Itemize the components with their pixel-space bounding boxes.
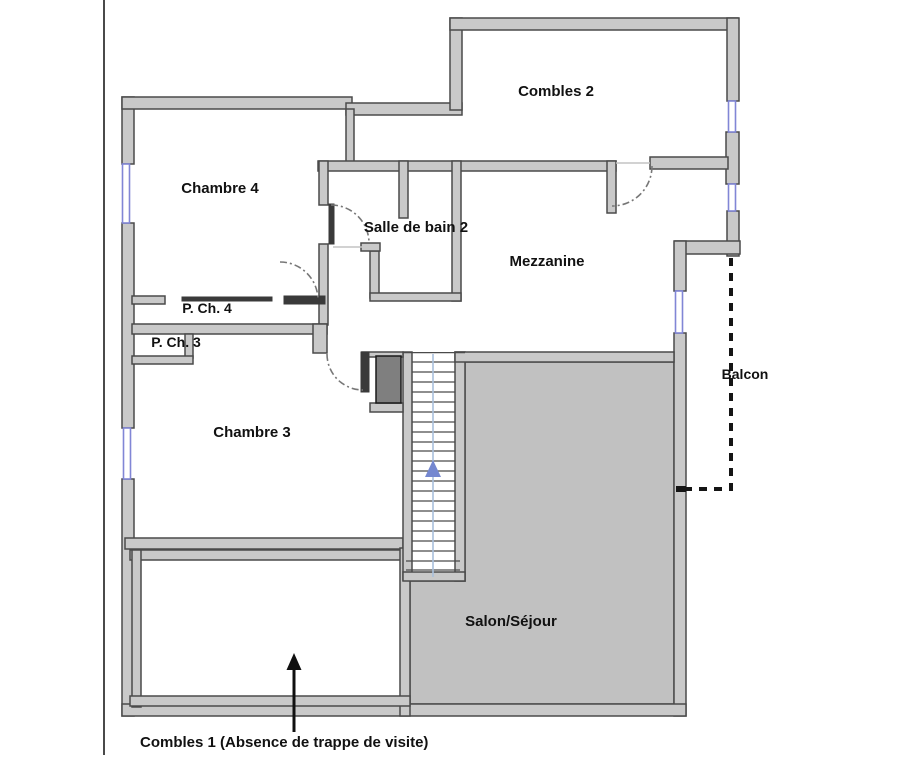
label-salon-sejour: Salon/Séjour bbox=[465, 613, 557, 630]
floorplan-canvas: Combles 2 Chambre 4 Salle de bain 2 Mezz… bbox=[0, 0, 903, 768]
combles1-annotation-arrow bbox=[287, 653, 302, 732]
door-leaf-salledebain bbox=[329, 204, 334, 244]
wall-divider-combles2-left bbox=[318, 161, 616, 171]
wall-divider-stub bbox=[607, 161, 616, 213]
chimney-flue bbox=[376, 356, 401, 403]
wall-divider-combles2-right bbox=[650, 157, 728, 169]
wall-stairs-left bbox=[403, 352, 412, 580]
wall-stairs-right bbox=[455, 352, 465, 581]
wall-vestibule-lower bbox=[319, 244, 328, 325]
wall-salon-right bbox=[674, 333, 686, 716]
wall-top-salledebain bbox=[346, 103, 462, 115]
door-arc-combles2 bbox=[612, 166, 652, 206]
wall-chambre4-bottom bbox=[132, 296, 165, 304]
wall-combles2-left bbox=[450, 18, 462, 110]
label-salle-de-bain2: Salle de bain 2 bbox=[364, 219, 468, 236]
wall-pch3-bottom bbox=[132, 356, 193, 364]
door-arc-chambre4 bbox=[280, 262, 318, 300]
stair-direction-arrow-icon bbox=[425, 460, 441, 477]
wall-mezzanine-right bbox=[674, 241, 686, 291]
balcony-wall-tick bbox=[676, 486, 686, 492]
label-balcon: Balcon bbox=[722, 366, 769, 382]
window-mezzanine-icon bbox=[676, 291, 683, 333]
wall-salon-top bbox=[455, 352, 674, 362]
door-arc-chambre3 bbox=[327, 354, 363, 390]
label-mezzanine: Mezzanine bbox=[509, 253, 584, 270]
window-combles2-upper-icon bbox=[729, 101, 736, 132]
wall-stairs-bottom bbox=[403, 572, 465, 581]
wall-longwall-pch4 bbox=[132, 324, 327, 334]
door-post-chambre3 bbox=[361, 352, 369, 392]
salon-floor-area bbox=[410, 362, 674, 704]
wall-top-chambre4 bbox=[122, 97, 352, 109]
wall-longwall-endcap bbox=[313, 324, 327, 353]
window-chambre3-icon bbox=[124, 428, 131, 479]
label-combles1-annotation: Combles 1 (Absence de trappe de visite) bbox=[140, 734, 428, 751]
wall-jog-vertical bbox=[346, 109, 354, 162]
label-p-ch-3: P. Ch. 3 bbox=[151, 334, 201, 350]
wall-vestibule-upper bbox=[319, 161, 328, 205]
wall-right-upper bbox=[727, 18, 739, 101]
wall-combles1-top bbox=[130, 550, 410, 560]
wall-chambre3-bottom bbox=[125, 538, 403, 549]
label-p-ch-4: P. Ch. 4 bbox=[182, 300, 232, 316]
wall-flue-nook-bottom bbox=[370, 403, 403, 412]
wall-combles1-bottom bbox=[130, 696, 410, 706]
wall-sdb-notch bbox=[361, 243, 380, 251]
window-chambre4-icon bbox=[123, 164, 130, 223]
label-chambre3: Chambre 3 bbox=[213, 424, 291, 441]
wall-sdb-inner-vert bbox=[370, 251, 379, 298]
arrow-head-icon bbox=[287, 653, 302, 670]
wall-sdb-partition bbox=[399, 161, 408, 218]
wall-chambre4-bottom-dark bbox=[284, 296, 325, 304]
label-combles2: Combles 2 bbox=[518, 83, 594, 100]
window-combles2-lower-icon bbox=[729, 184, 736, 211]
wall-sdb-inner-horiz bbox=[370, 293, 461, 301]
label-chambre4: Chambre 4 bbox=[181, 180, 259, 197]
wall-combles1-left bbox=[132, 550, 141, 707]
wall-combles2-top bbox=[450, 18, 738, 30]
floorplan-svg: Combles 2 Chambre 4 Salle de bain 2 Mezz… bbox=[0, 0, 903, 768]
